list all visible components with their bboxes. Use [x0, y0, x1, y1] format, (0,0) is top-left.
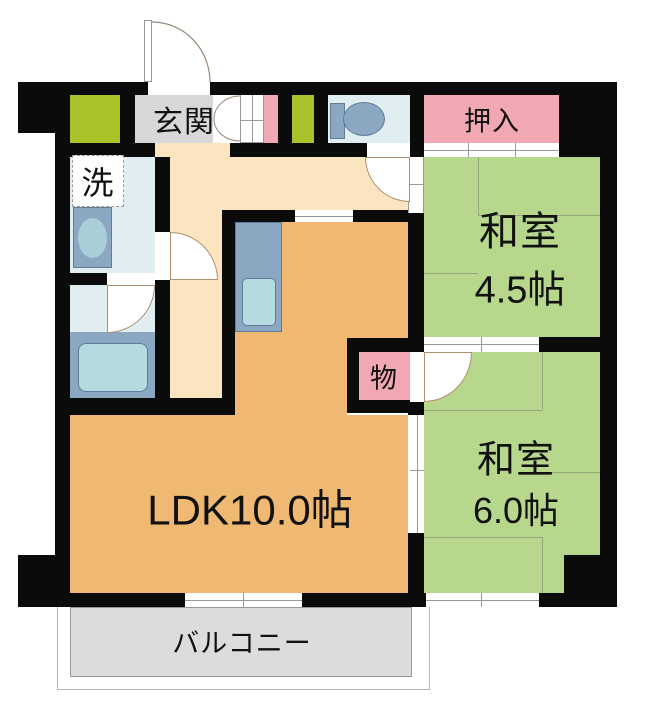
washbasin-bowl-icon: [78, 218, 107, 258]
kitchen-sink-icon: [242, 278, 276, 326]
toilet-bowl-icon: [343, 102, 385, 136]
washbasin-icon: [73, 207, 112, 268]
label-balcony: バルコニー: [172, 622, 311, 661]
label-washitsu60-name: 和室: [477, 429, 555, 484]
label-storage: 物: [370, 357, 398, 396]
label-washitsu45-size: 4.5帖: [475, 259, 566, 314]
label-washitsu45-name: 和室: [479, 199, 561, 257]
label-wash: 洗: [81, 158, 114, 204]
label-oshiire: 押入: [464, 100, 520, 139]
label-ldk: LDK10.0帖: [147, 477, 352, 538]
kitchen-counter-icon: [235, 222, 282, 332]
label-genkan: 玄関: [153, 97, 215, 141]
bathtub-icon: [78, 343, 148, 392]
label-washitsu60-size: 6.0帖: [473, 482, 559, 534]
floor-plan: 玄関 押入 洗 和室 4.5帖 物 和室 6.0帖 LDK10.0帖 バルコニー: [0, 0, 652, 705]
